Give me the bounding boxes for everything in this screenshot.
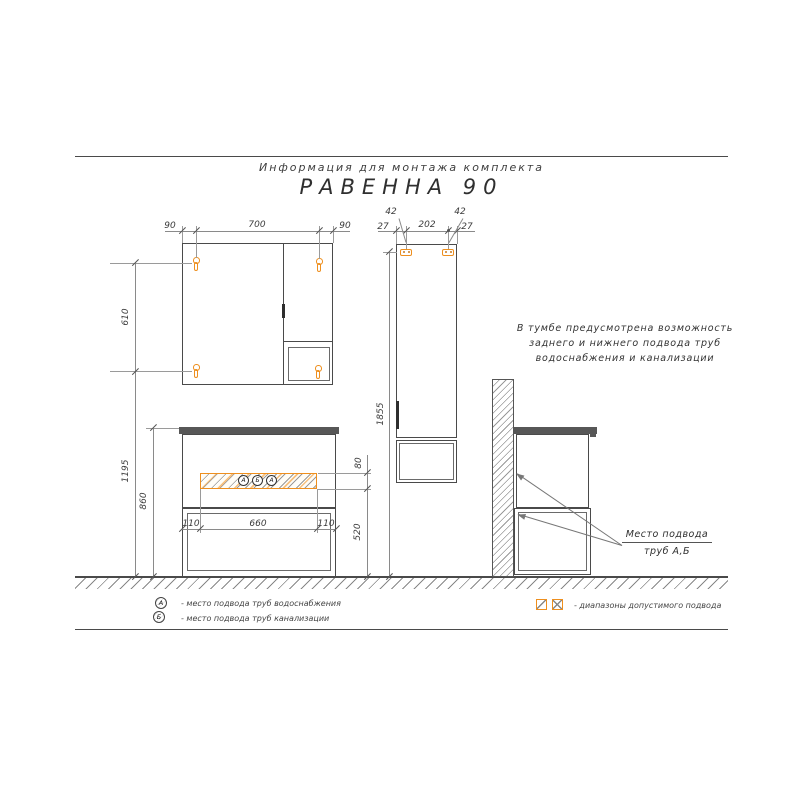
keyhole-mount-icon xyxy=(315,258,324,272)
keyhole-mount-icon xyxy=(192,364,201,378)
dim-label: 90 xyxy=(160,221,180,231)
legend-range-cross-icon xyxy=(552,599,563,610)
note-block: В тумбе предусмотрена возможность заднег… xyxy=(512,321,738,366)
mirror-cabinet-open-niche xyxy=(288,347,330,381)
dimension-line xyxy=(389,252,390,577)
dim-label: 27 xyxy=(458,222,476,232)
tall-door-gap xyxy=(396,401,399,429)
countertop-front xyxy=(179,427,339,434)
extension-line xyxy=(318,473,371,474)
extension-line xyxy=(318,489,371,490)
legend-water-symbol: А xyxy=(155,597,167,609)
wall-column-hatched xyxy=(492,379,514,577)
countertop-lip xyxy=(590,434,596,437)
dim-label: 700 xyxy=(237,220,277,230)
drawing-sheet: Информация для монтажа комплекта РАВЕННА… xyxy=(0,0,800,800)
dimension-line xyxy=(135,263,136,577)
dim-label: 202 xyxy=(408,220,446,230)
sheet-bottom-border xyxy=(75,629,728,630)
legend-sewer-symbol: Б xyxy=(153,611,165,623)
dim-label: 27 xyxy=(374,222,392,232)
port-symbol-water: А xyxy=(238,475,249,486)
legend-ranges-text: - диапазоны допустимого подвода xyxy=(574,601,721,610)
port-symbol-sewer: Б xyxy=(252,475,263,486)
dimension-line xyxy=(153,428,154,577)
dim-label: 42 xyxy=(452,207,468,217)
dim-label: 110 xyxy=(181,519,201,529)
keyhole-mount-icon xyxy=(314,365,323,379)
countertop-side xyxy=(514,427,597,434)
mount-bracket-icon xyxy=(400,249,412,256)
mount-bracket-icon xyxy=(442,249,454,256)
tall-cabinet-outline xyxy=(396,244,457,438)
callout-label-line1: Место подвода xyxy=(620,529,714,540)
note-line: заднего и нижнего подвода труб xyxy=(512,336,738,351)
vanity-side-lower-box-inner xyxy=(518,512,587,571)
extension-line xyxy=(110,371,192,372)
legend-range-diagonal-icon xyxy=(536,599,547,610)
dimension-line xyxy=(182,529,336,530)
dim-label: 610 xyxy=(121,303,131,331)
port-symbol-water: А xyxy=(266,475,277,486)
vanity-body-outline xyxy=(182,434,336,508)
callout-underline xyxy=(622,542,712,543)
dim-label: 80 xyxy=(354,453,364,473)
dim-label: 520 xyxy=(353,519,363,545)
dim-label: 110 xyxy=(316,519,336,529)
mirror-cabinet-shelf-line xyxy=(284,341,333,342)
sheet-top-border xyxy=(75,156,728,157)
dim-label: 42 xyxy=(383,207,399,217)
legend-sewer-text: - место подвода труб канализации xyxy=(181,614,329,623)
extension-line xyxy=(110,263,192,264)
callout-label-line2: труб А,Б xyxy=(620,546,714,557)
dim-label: 90 xyxy=(335,221,355,231)
extension-line xyxy=(383,252,397,253)
dim-label: 660 xyxy=(238,519,278,529)
dim-node-dot xyxy=(447,229,450,232)
dim-label: 1195 xyxy=(121,456,131,486)
note-line: В тумбе предусмотрена возможность xyxy=(512,321,738,336)
legend-water-text: - место подвода труб водоснабжения xyxy=(181,599,341,608)
mirror-door-gap xyxy=(282,304,285,318)
tall-cabinet-open-box-inner xyxy=(399,443,454,480)
keyhole-mount-icon xyxy=(192,257,201,271)
dim-label: 1855 xyxy=(376,397,386,431)
note-line: водоснабжения и канализации xyxy=(512,351,738,366)
floor-hatch xyxy=(75,578,728,589)
dim-label: 860 xyxy=(139,488,149,514)
drawing-title: РАВЕННА 90 xyxy=(75,175,728,199)
drawing-subtitle: Информация для монтажа комплекта xyxy=(75,161,728,174)
